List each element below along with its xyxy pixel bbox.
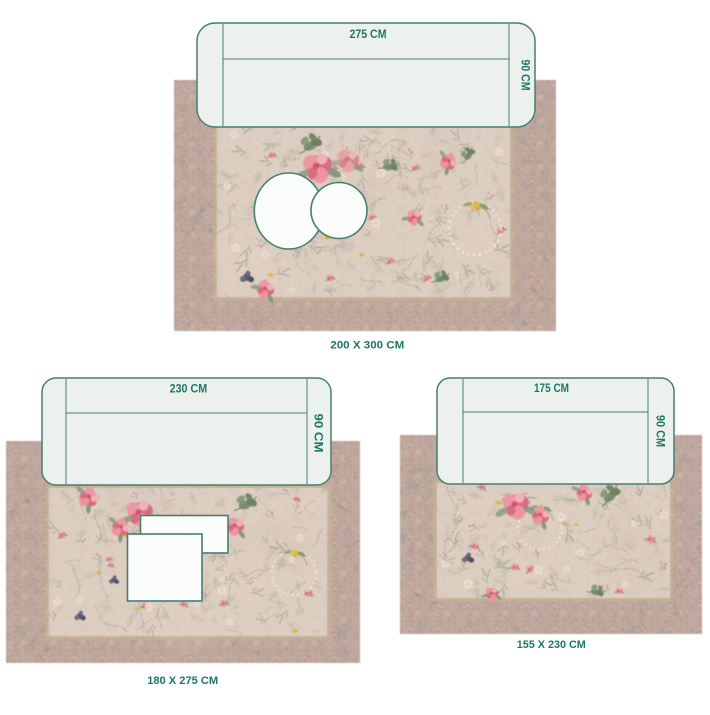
svg-text:175 CM: 175 CM: [534, 381, 569, 395]
svg-text:180 X 275 CM: 180 X 275 CM: [147, 675, 218, 687]
svg-text:200 X 300 CM: 200 X 300 CM: [330, 339, 404, 351]
svg-text:90 CM: 90 CM: [519, 60, 533, 91]
svg-text:90 CM: 90 CM: [654, 415, 668, 447]
svg-text:155 X 230 CM: 155 X 230 CM: [517, 639, 586, 651]
svg-text:230 CM: 230 CM: [170, 382, 208, 396]
svg-text:90 CM: 90 CM: [312, 414, 326, 453]
svg-text:275 CM: 275 CM: [350, 27, 387, 41]
